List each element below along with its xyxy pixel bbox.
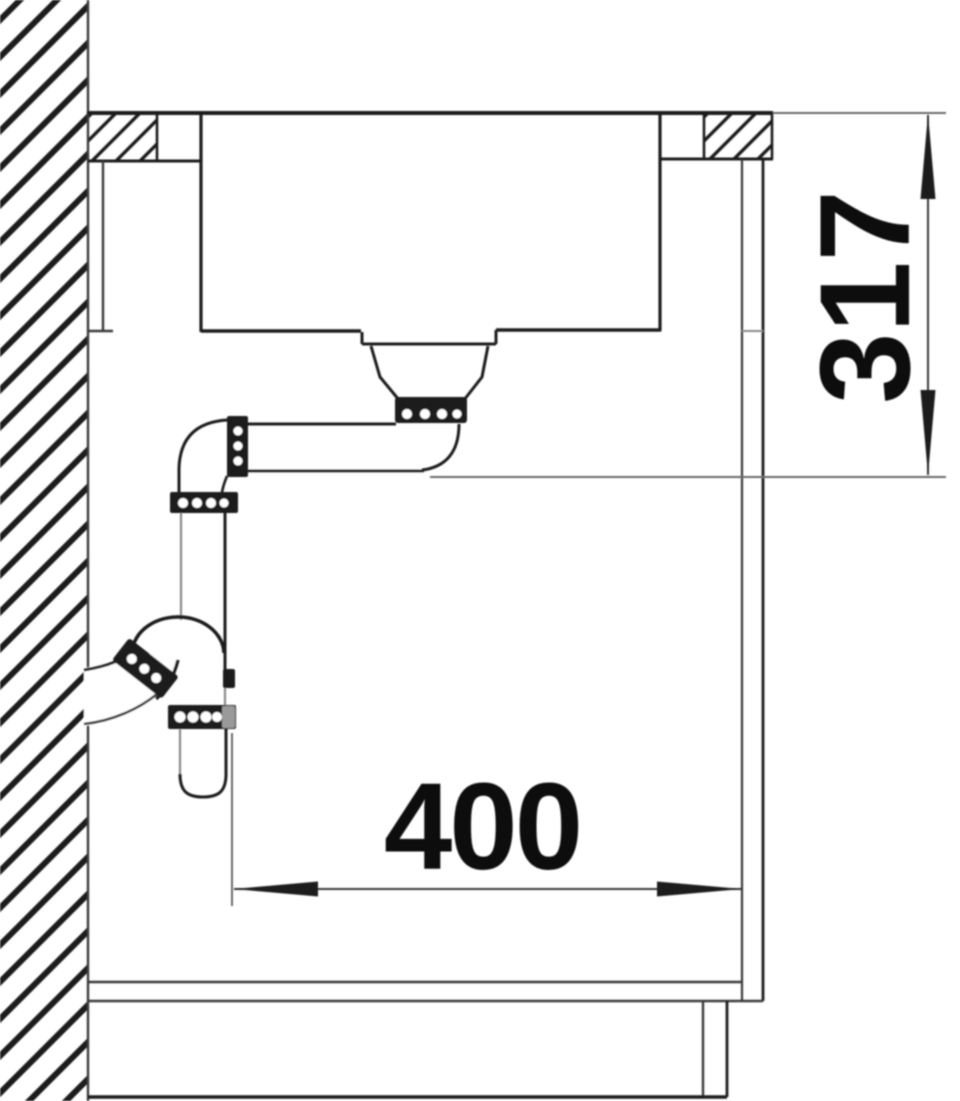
svg-text:317: 317	[794, 190, 937, 404]
svg-text:400: 400	[384, 759, 580, 896]
